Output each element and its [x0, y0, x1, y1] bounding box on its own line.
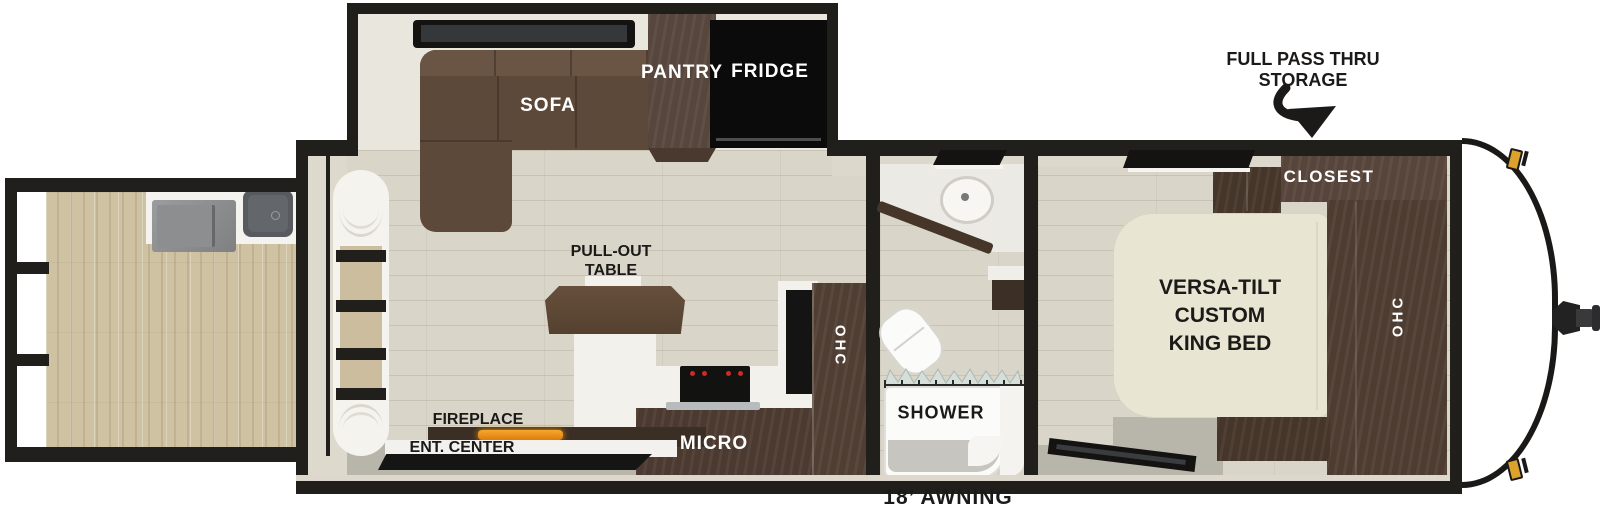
- outdoor-griddle-lid: [157, 205, 215, 247]
- slideout-window-glass: [421, 25, 627, 42]
- bed-head-cabinet-seam: [1246, 169, 1248, 211]
- bathroom-window-sill: [935, 165, 1003, 169]
- pass-thru-storage-arrow: [1252, 84, 1352, 144]
- king-bed-label: VERSA-TILT CUSTOM KING BED: [1159, 274, 1281, 358]
- deck-rail-bottom: [5, 447, 297, 462]
- kitchen-wall-band: [832, 156, 866, 176]
- awning-label: 18’ AWNING: [883, 486, 1012, 510]
- bedroom-ohc-seam: [1355, 202, 1357, 475]
- sofa-chaise: [420, 140, 512, 232]
- sofa-label: SOFA: [520, 95, 576, 117]
- bathroom-ledge: [988, 266, 1024, 280]
- pull-out-table-label-line1: PULL-OUT: [571, 242, 652, 261]
- outdoor-sink-drain: [271, 211, 280, 220]
- front-cap: [1462, 138, 1558, 488]
- micro-vent-strip: [666, 402, 760, 410]
- sofa-back-cushions: [420, 50, 655, 76]
- marker-light-bottom: [1506, 458, 1524, 482]
- bed-crease: [1316, 222, 1318, 410]
- hitch-tip: [1592, 305, 1600, 331]
- marker-light-top: [1506, 148, 1524, 172]
- rear-door-bar-4: [336, 388, 386, 400]
- shower-wing: [1000, 386, 1024, 476]
- pantry-cabinet-base: [648, 148, 716, 162]
- deck-rail-crossbar-2: [5, 354, 49, 366]
- bedroom-window-top: [1123, 150, 1255, 168]
- pass-thru-storage-line1: FULL PASS THRU: [1226, 49, 1379, 70]
- bedroom-ohc-label: OHC: [1390, 295, 1407, 337]
- shower-label: SHOWER: [898, 403, 985, 424]
- cooktop-knob-3: [726, 371, 731, 376]
- bathroom-wall-right: [1024, 150, 1038, 481]
- rear-door-bar-3: [336, 348, 386, 360]
- deck-rail-top: [5, 178, 297, 192]
- bedroom-window-top-sill: [1128, 168, 1250, 172]
- outdoor-sink-basin: [248, 195, 288, 232]
- cooktop-knob-4: [738, 371, 743, 376]
- king-bed-label-line3: KING BED: [1159, 330, 1281, 358]
- fridge-label: FRIDGE: [731, 61, 809, 83]
- micro-label: MICRO: [680, 433, 748, 455]
- rear-door-bar-1: [336, 250, 386, 262]
- kitchen-ohc-cabinet: [812, 283, 868, 481]
- pull-out-table-label-line2: TABLE: [571, 261, 652, 280]
- ent-center-label: ENT. CENTER: [410, 439, 515, 457]
- bathroom-sink-drain: [961, 193, 969, 201]
- kitchen-cabinet-inset: [786, 290, 814, 394]
- fridge-vent: [716, 138, 821, 141]
- king-bed-label-line1: VERSA-TILT: [1159, 274, 1281, 302]
- pull-out-table-top: [545, 286, 685, 334]
- pull-out-table-label: PULL-OUT TABLE: [571, 242, 652, 280]
- bathroom-niche: [992, 280, 1024, 310]
- deck-rail-left: [5, 178, 17, 462]
- cooktop-knob-1: [690, 371, 695, 376]
- cooktop-knob-2: [702, 371, 707, 376]
- deck-rail-crossbar-1: [5, 262, 49, 274]
- kitchen-ohc-label: OHC: [832, 325, 849, 367]
- closet-label: CLOSEST: [1284, 167, 1375, 187]
- sofa-seat-seams: [497, 76, 499, 148]
- rear-door-bar-2: [336, 300, 386, 312]
- fridge: [710, 20, 827, 148]
- king-bed-label-line2: CUSTOM: [1159, 302, 1281, 330]
- bedroom-ohc-wardrobe: [1327, 200, 1447, 477]
- bottom-wall: [296, 481, 1462, 494]
- bathroom-wall-left: [866, 150, 880, 481]
- floorplan-canvas: SOFA PANTRY FRIDGE PULL-OUT TABLE FIREPL…: [0, 0, 1600, 510]
- rear-exterior-wall: [296, 140, 308, 494]
- pantry-label: PANTRY: [641, 62, 723, 84]
- rear-door-curtain-top-2: [343, 190, 379, 229]
- rear-door-glass: [340, 246, 382, 398]
- rear-wall-line: [326, 150, 330, 456]
- rear-door-curtain-bottom-2: [343, 412, 379, 445]
- marker-light-bottom-tick: [1521, 458, 1529, 474]
- front-interior-wall: [1450, 140, 1462, 494]
- nightstand: [1217, 417, 1330, 461]
- bathroom-window: [933, 150, 1007, 165]
- fireplace-label: FIREPLACE: [433, 411, 524, 429]
